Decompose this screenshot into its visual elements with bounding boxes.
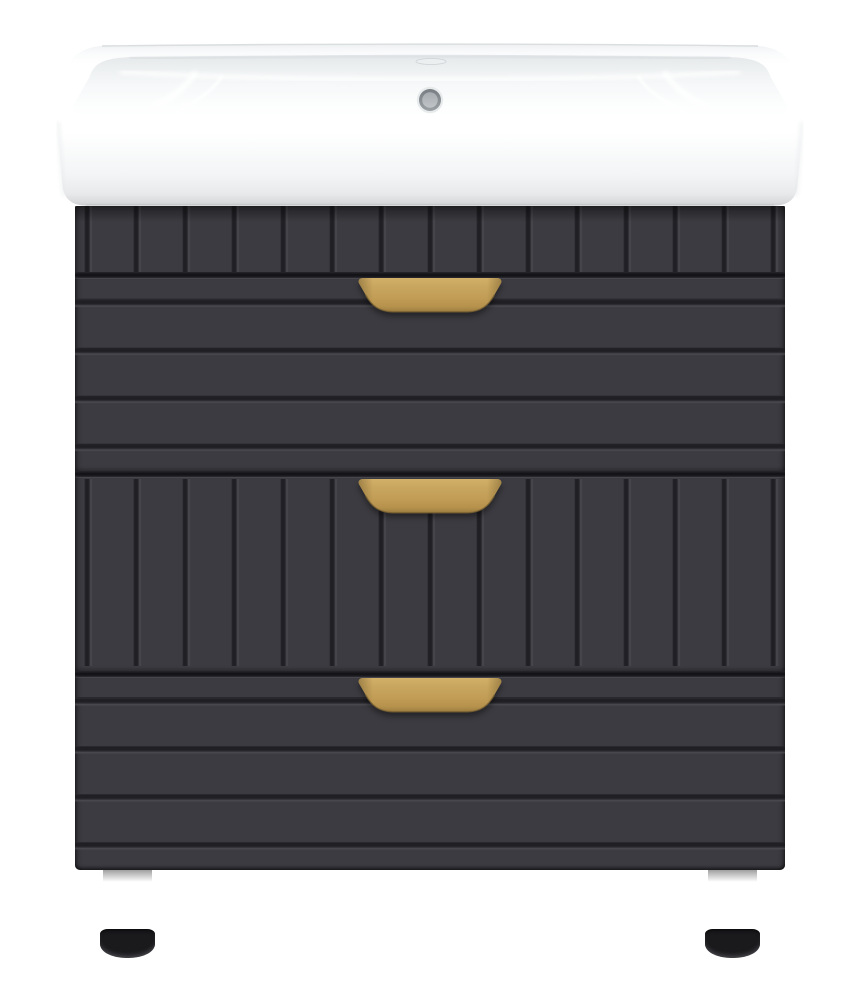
- handle-side-shade: [359, 479, 502, 513]
- vanity-cabinet: [75, 206, 785, 870]
- drawer-top-handle: [358, 278, 502, 313]
- drawer-middle-handle: [358, 479, 502, 514]
- leg-left: [103, 866, 152, 932]
- handle-side-shade: [359, 678, 502, 712]
- leg-right: [708, 866, 757, 932]
- overflow-hole: [417, 87, 443, 113]
- product-image: [0, 0, 860, 1000]
- handle-side-shade: [359, 278, 502, 312]
- leg-right-foot: [705, 929, 760, 958]
- faucet-hole: [416, 59, 446, 65]
- sink: [0, 0, 860, 212]
- drawer-middle: [75, 477, 785, 671]
- leg-left-foot: [100, 929, 155, 958]
- drawer-top: [75, 278, 785, 471]
- top-slat-panel: [75, 206, 785, 272]
- drawer-bottom: [75, 677, 785, 870]
- drawer-bottom-handle: [358, 678, 502, 713]
